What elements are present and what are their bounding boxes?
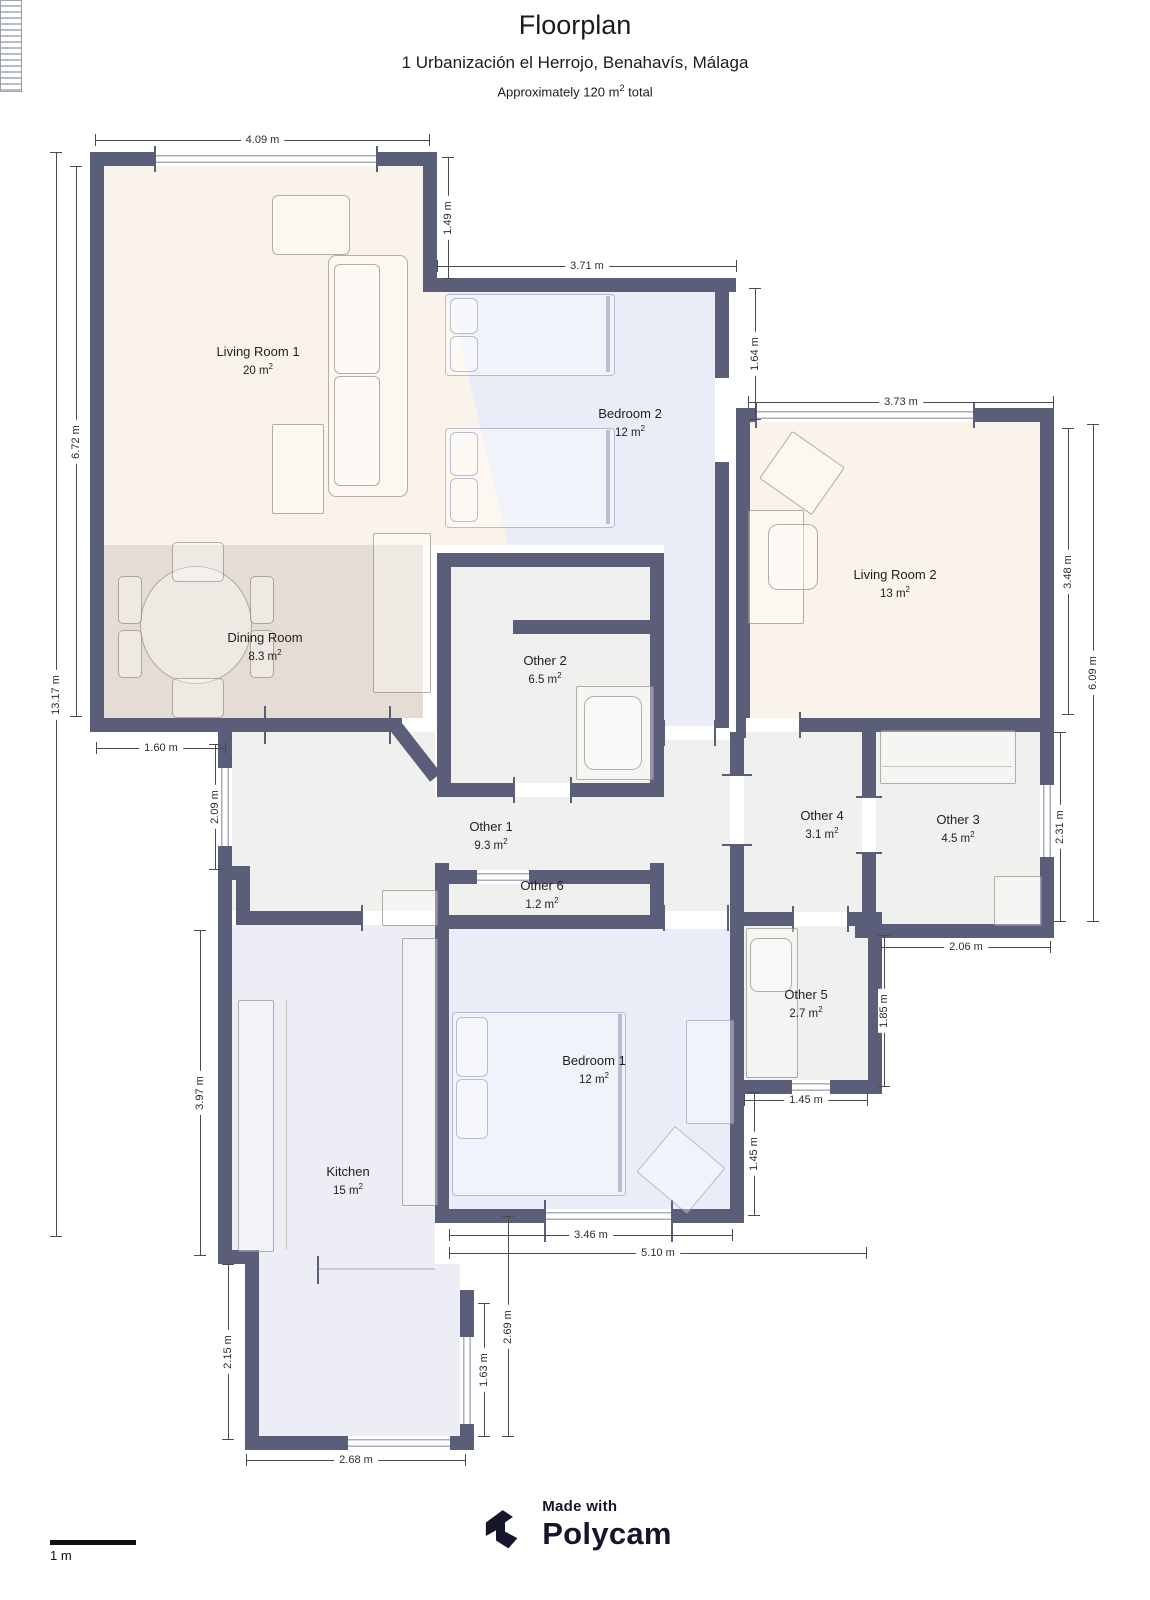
door-jamb — [513, 777, 515, 803]
room-fill-patio — [258, 1264, 460, 1436]
wall — [250, 911, 362, 925]
desk-chair — [768, 524, 818, 590]
kitchen-counter — [238, 1000, 274, 1252]
wall — [90, 152, 104, 732]
floorplan-canvas: Living Room 120 m2 Dining Room8.3 m2 Bed… — [0, 0, 1150, 1600]
door-opening — [730, 775, 744, 845]
room-label-other-6: Other 61.2 m2 — [520, 878, 563, 914]
sofa-cushion — [334, 376, 380, 486]
scale-bar-line — [50, 1540, 136, 1545]
polycam-logo-icon — [478, 1498, 532, 1556]
wall — [862, 732, 876, 797]
room-label-living-room-2: Living Room 213 m2 — [853, 567, 936, 603]
wall — [423, 152, 437, 292]
wall — [437, 553, 451, 797]
wall — [730, 912, 793, 926]
door-jamb — [856, 796, 882, 798]
window — [792, 1080, 830, 1094]
dining-chair — [172, 542, 224, 582]
pillow — [456, 1017, 488, 1077]
dining-chair — [172, 678, 224, 718]
door-jamb — [317, 1256, 319, 1284]
door-jamb — [727, 905, 729, 931]
wall — [449, 915, 650, 929]
room-label-bedroom-1: Bedroom 112 m2 — [562, 1053, 626, 1089]
door-jamb — [264, 706, 266, 744]
dining-chair — [118, 576, 142, 624]
sofa-cushion — [334, 264, 380, 374]
door-jamb — [847, 906, 849, 932]
closet — [880, 730, 1016, 784]
pillow — [450, 478, 478, 522]
wall — [1040, 408, 1054, 732]
dining-table — [140, 566, 252, 684]
wall — [90, 718, 402, 732]
window — [155, 152, 377, 166]
dining-chair — [250, 576, 274, 624]
room-fill-bedroom-2-nook — [664, 545, 715, 726]
kitchen-counter — [402, 938, 438, 1206]
window — [348, 1436, 450, 1450]
fridge — [382, 890, 438, 926]
wall — [715, 278, 729, 378]
door-jamb — [856, 852, 882, 854]
wall — [423, 278, 736, 292]
door-jamb — [570, 777, 572, 803]
sink — [750, 938, 792, 992]
door-jamb — [361, 905, 363, 931]
wardrobe — [686, 1020, 734, 1124]
window-jamb — [973, 402, 975, 428]
kitchen-counter-edge — [286, 1000, 287, 1250]
door-swing-line — [319, 1268, 435, 1270]
room-label-other-5: Other 52.7 m2 — [784, 987, 827, 1023]
window — [460, 1337, 474, 1424]
pillow — [456, 1079, 488, 1139]
door-jamb — [744, 712, 746, 738]
room-fill-other-1-left — [232, 732, 435, 911]
room-label-dining-room: Dining Room8.3 m2 — [227, 630, 302, 666]
brand-footer: Made with Polycam — [0, 1498, 1150, 1556]
room-label-other-3: Other 34.5 m2 — [936, 812, 979, 848]
room-label-living-room-1: Living Room 120 m2 — [216, 344, 299, 380]
pillow — [450, 298, 478, 334]
wall — [245, 1250, 259, 1450]
made-with-label: Made with — [542, 1498, 672, 1515]
window — [545, 1209, 672, 1223]
room-label-bedroom-2: Bedroom 212 m2 — [598, 406, 662, 442]
door-opening — [793, 912, 848, 926]
window — [1040, 785, 1054, 857]
scale-bar-label: 1 m — [50, 1548, 136, 1563]
sink — [584, 696, 642, 770]
polycam-wordmark: Polycam — [542, 1516, 672, 1552]
door-jamb — [663, 720, 665, 746]
room-label-other-2: Other 26.5 m2 — [523, 653, 566, 689]
door-opening — [745, 718, 800, 732]
shutter-panel — [0, 0, 22, 92]
room-label-other-1: Other 19.3 m2 — [469, 819, 512, 855]
closet-rail — [882, 766, 1012, 767]
room-label-other-4: Other 43.1 m2 — [800, 808, 843, 844]
door-jamb — [663, 905, 665, 931]
door-jamb — [722, 844, 752, 846]
door-jamb — [722, 774, 752, 776]
bed-footboard — [606, 296, 610, 372]
door-opening — [664, 726, 715, 740]
dining-chair — [118, 630, 142, 678]
door-opening — [664, 911, 730, 925]
sideboard — [373, 533, 431, 693]
wall — [437, 553, 664, 567]
window — [756, 408, 974, 422]
scale-bar: 1 m — [50, 1540, 136, 1563]
door-opening — [862, 797, 876, 853]
door-opening — [514, 783, 571, 797]
door-jamb — [799, 712, 801, 738]
wall — [715, 462, 729, 728]
side-table — [272, 424, 324, 514]
door-jamb — [389, 706, 391, 744]
pillow — [450, 336, 478, 372]
wall — [650, 863, 664, 929]
cabinet — [994, 876, 1042, 926]
room-fill-other-1-right — [664, 740, 730, 911]
bed-footboard — [618, 1014, 622, 1192]
window-jamb — [154, 146, 156, 172]
pillow — [450, 432, 478, 476]
bed-footboard — [606, 430, 610, 524]
wall — [236, 866, 250, 925]
room-label-kitchen: Kitchen15 m2 — [326, 1164, 369, 1200]
armchair — [272, 195, 350, 255]
window-jamb — [376, 146, 378, 172]
wall-half — [513, 620, 664, 634]
door-jamb — [714, 720, 716, 746]
